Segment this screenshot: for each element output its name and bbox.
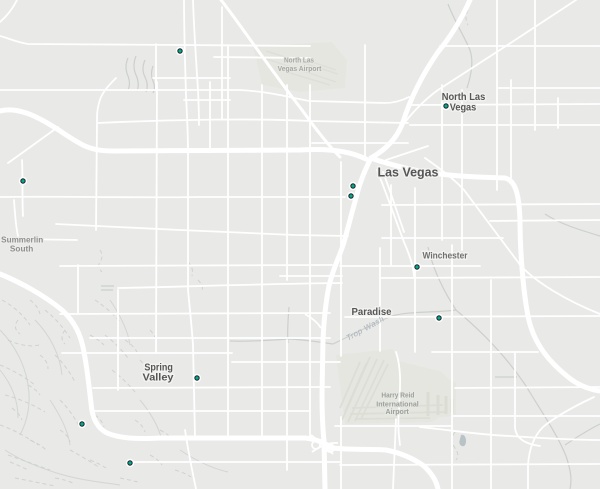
svg-text:Valley: Valley [143,373,174,384]
svg-text:Summerlin: Summerlin [1,236,43,245]
svg-text:Winchester: Winchester [423,250,468,260]
svg-text:South: South [10,244,34,253]
svg-text:Vegas: Vegas [450,103,477,114]
svg-text:Vegas Airport: Vegas Airport [278,66,322,73]
svg-text:Airport: Airport [386,409,410,416]
svg-text:North Las: North Las [442,92,486,103]
svg-text:Paradise: Paradise [352,307,392,318]
svg-text:North Las: North Las [284,58,314,65]
svg-text:Harry Reid: Harry Reid [381,393,414,400]
svg-text:International: International [376,401,419,408]
svg-text:Las Vegas: Las Vegas [378,165,439,180]
